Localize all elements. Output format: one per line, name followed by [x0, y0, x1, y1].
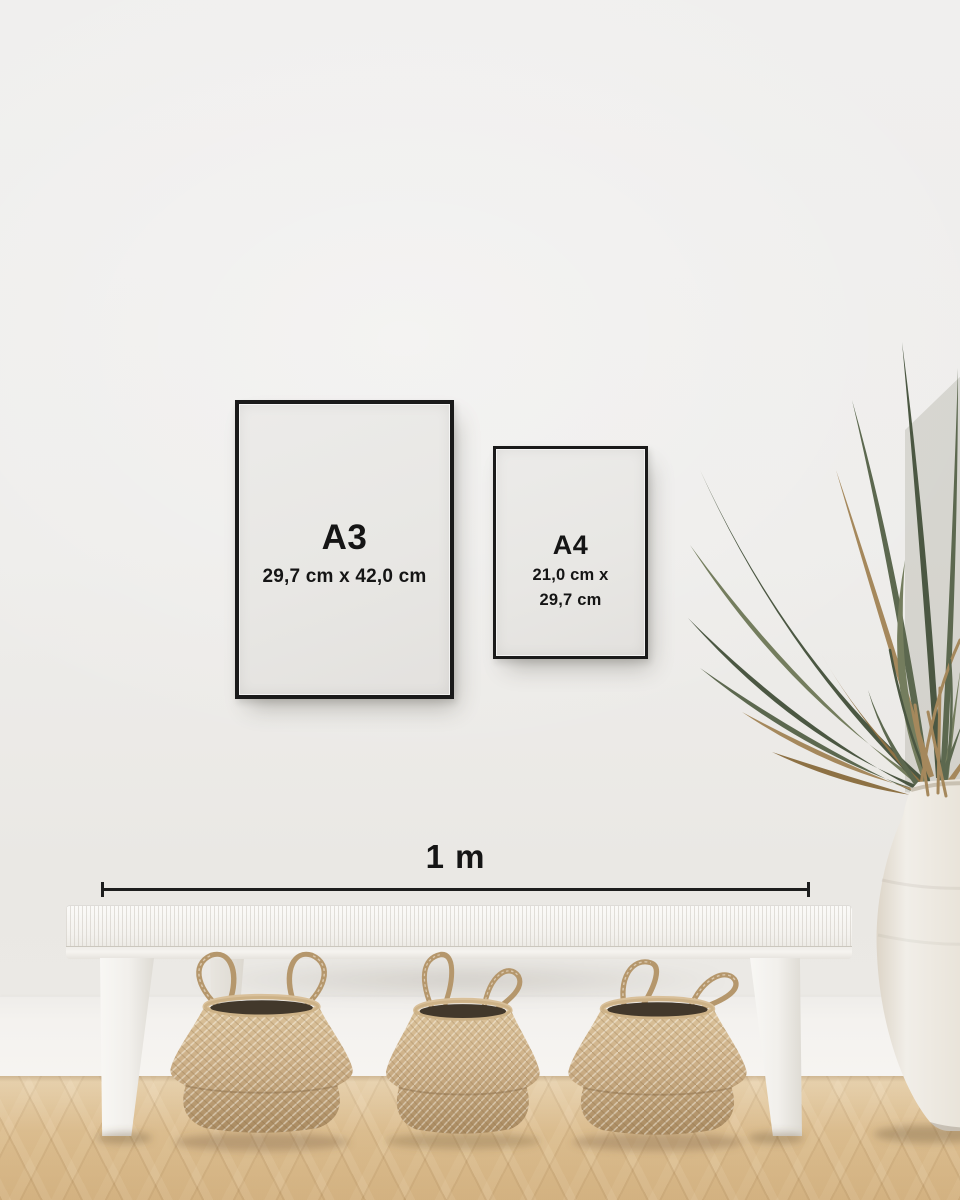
basket-1	[170, 954, 352, 1132]
decor-overlay	[0, 0, 960, 1200]
room-scene: A3 29,7 cm x 42,0 cm A4 21,0 cm x 29,7 c…	[0, 0, 960, 1200]
basket-2	[386, 955, 540, 1134]
basket-3	[568, 962, 746, 1135]
